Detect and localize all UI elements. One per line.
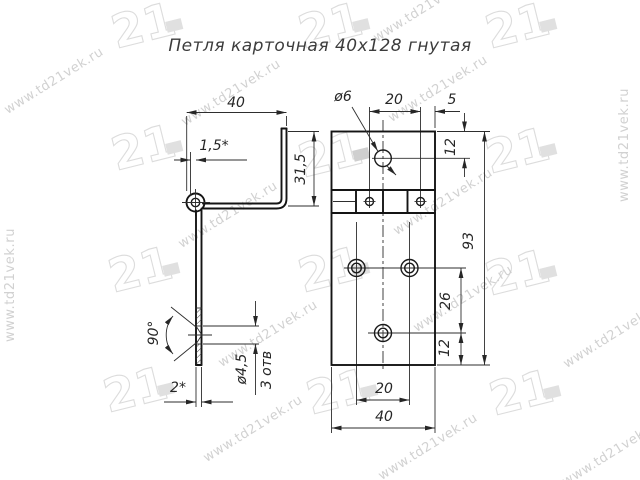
watermark-url: www.td21vek.ru bbox=[386, 52, 491, 125]
drawing-title: Петля карточная 40х128 гнутая bbox=[0, 36, 640, 56]
dim-total-height: 93 bbox=[461, 232, 477, 250]
dim-top-hole-offset: 12 bbox=[443, 138, 459, 156]
dim-flange-height: 31,5 bbox=[293, 153, 309, 184]
dim-side-width-40: 40 bbox=[227, 95, 245, 111]
watermark-url-left-edge: www.td21vek.ru bbox=[3, 228, 18, 342]
watermark-url: www.td21vek.ru bbox=[561, 298, 640, 371]
drawing-page: 21 21 21 21 21 bbox=[0, 0, 640, 480]
dim-lower-holes-spacing: 26 bbox=[438, 292, 454, 310]
dim-front-width-40: 40 bbox=[375, 409, 393, 425]
watermark-21-logo: 21 bbox=[301, 356, 382, 425]
watermark-21-logo: 21 bbox=[98, 354, 179, 423]
side-view-angle-callout: 90° bbox=[146, 307, 196, 361]
dim-leaf-thickness: 2* bbox=[170, 380, 186, 396]
dim-countersink-angle: 90° bbox=[146, 321, 162, 346]
dim-pin-spacing: 20 bbox=[385, 92, 403, 108]
front-view-dim-bottom-offset: 12 bbox=[437, 333, 461, 365]
watermark-21-logo: 21 bbox=[103, 234, 184, 303]
knuckle-pin-ends bbox=[364, 198, 427, 206]
watermark-21-logo: 21 bbox=[106, 112, 187, 181]
side-view-dim-leaf-thickness: 2* bbox=[164, 367, 233, 407]
dim-hole-diameter: ø4,5 bbox=[234, 353, 250, 385]
dim-pin-hole-diameter: ø6 bbox=[333, 89, 352, 105]
dim-holes-spacing-x: 20 bbox=[375, 381, 393, 397]
watermark-url: www.td21vek.ru bbox=[560, 416, 640, 480]
watermark-url-right-edge: www.td21vek.ru bbox=[617, 88, 632, 202]
dim-holes-count: 3 отв bbox=[259, 351, 275, 389]
side-view-dim-flange-thickness: 1,5* bbox=[174, 138, 247, 196]
watermark-url: www.td21vek.ru bbox=[176, 178, 281, 251]
dim-flange-thickness: 1,5* bbox=[199, 138, 228, 154]
side-view-section-hatch bbox=[188, 308, 212, 365]
watermark-url: www.td21vek.ru bbox=[179, 56, 284, 129]
watermark-url: www.td21vek.ru bbox=[391, 165, 496, 238]
dim-pin-edge-offset: 5 bbox=[448, 92, 457, 108]
watermark-layer: 21 21 21 21 21 bbox=[2, 0, 640, 480]
watermark-url: www.td21vek.ru bbox=[201, 392, 306, 465]
drawing-canvas: 21 21 21 21 21 bbox=[0, 0, 640, 480]
front-view-dim-total-height: 93 bbox=[437, 132, 490, 366]
watermark-21-logo: 21 bbox=[484, 357, 565, 426]
dim-bottom-hole-offset: 12 bbox=[437, 339, 453, 357]
